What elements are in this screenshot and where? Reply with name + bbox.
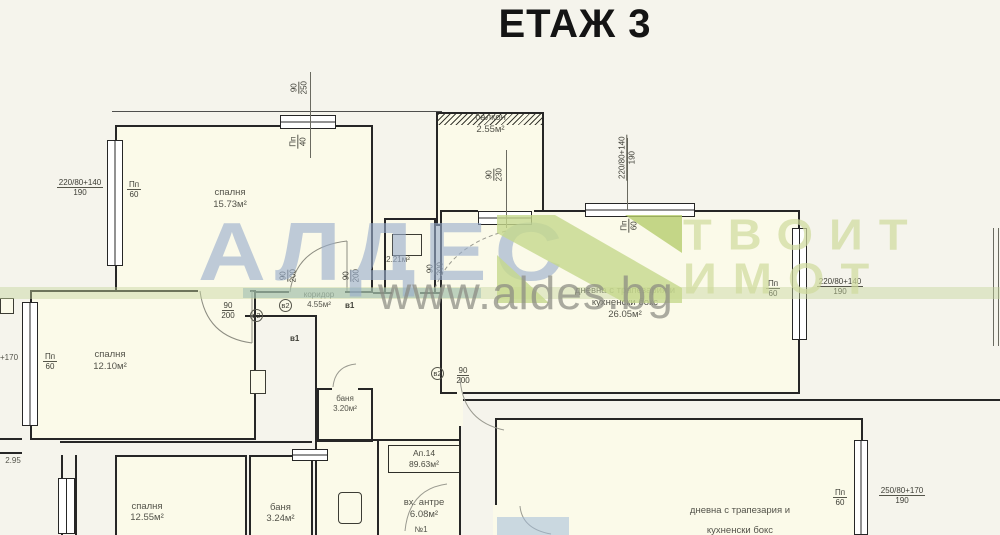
dim-pp60-b: Пп 60	[619, 214, 638, 238]
bedroom2-area: 12.10м²	[70, 362, 150, 372]
corridor-area: 4.55м²	[296, 301, 342, 310]
bath2-area: 3.24м²	[248, 514, 313, 524]
living2-name-2: кухненски бокс	[660, 526, 820, 535]
living-name-2: кухненски бокс	[545, 298, 705, 308]
wall-living2-slab	[460, 399, 1000, 401]
dim-pp60-a: Пп 60	[124, 180, 144, 199]
outer-wall-line	[112, 111, 442, 112]
living-area: 26.05м²	[545, 310, 705, 320]
bedroom1-area: 15.73м²	[180, 200, 280, 210]
apartment-number: Ап.14	[413, 448, 435, 458]
apartment-label-box: Ап.14 89.63м²	[388, 445, 460, 473]
balcony-area: 2.55м²	[448, 125, 533, 135]
dim-door-living: 90 200	[451, 366, 475, 385]
window-bath2-top	[292, 449, 328, 461]
wall-stub-b	[0, 452, 22, 454]
sink-fixture	[338, 492, 362, 524]
door-badge-b2-a: в2	[250, 309, 263, 322]
bath1-area: 3.20м²	[320, 405, 370, 414]
balcony-name: балкон	[448, 113, 533, 123]
room-living2	[495, 418, 863, 535]
dim-door-wc: 90 200	[425, 257, 444, 281]
length-295: 2.95	[0, 457, 26, 466]
wall-vert-entry	[377, 440, 379, 535]
door-badge-b2-b: в2	[279, 299, 292, 312]
bath2-name: баня	[248, 503, 313, 513]
dim-pp60-c: Пп 60	[763, 279, 783, 298]
dim-living-right-window: 220/80+140 190	[810, 277, 870, 296]
shaft-box	[250, 370, 266, 394]
bedroom1-name: спалня	[180, 188, 280, 198]
bedroom3-name: спалня	[112, 502, 182, 512]
bedroom2-name: спалня	[70, 350, 150, 360]
window-living-right	[792, 228, 807, 340]
bedroom3-area: 12.55м²	[112, 513, 182, 523]
dim-line-balcony-door	[506, 150, 507, 228]
edge-box	[0, 298, 14, 314]
window-living-top	[585, 203, 695, 217]
wall-bottom-double	[60, 441, 312, 443]
dim-balcony-door: 90 230	[484, 160, 503, 190]
bath1-name: баня	[320, 395, 370, 404]
window-bottom-left	[58, 478, 75, 534]
wc-fixture	[392, 234, 422, 256]
dim-door-corr-b: 90 200	[341, 264, 360, 288]
wall-vert-mid	[315, 316, 317, 535]
door-gap-bath1	[332, 386, 358, 391]
door-tag-v1-b: в1	[290, 334, 299, 343]
living-name-1: дневна с трапезария и	[545, 286, 705, 296]
wc-area: 2.21м²	[378, 256, 418, 265]
dim-pp40: Пп 40	[288, 132, 307, 152]
entry-name: вх. антре	[394, 498, 454, 508]
page-title: ЕТАЖ 3	[440, 2, 710, 47]
entry-area: 6.08м²	[394, 510, 454, 520]
corridor-name: коридор	[296, 291, 342, 300]
wall-left-inner	[75, 455, 77, 535]
edge-window-line2	[998, 228, 999, 346]
living2-name-1: дневна с трапезария и	[650, 506, 830, 516]
dim-window-living2: 250/80+170 190	[872, 486, 932, 505]
door-gap-living2	[493, 505, 498, 535]
dim-plus170: +170	[0, 354, 22, 363]
dim-line-top-window	[310, 72, 311, 158]
edge-window-line	[993, 228, 994, 346]
entry-note: №1	[406, 526, 436, 535]
door-tag-v1-a: в1	[345, 301, 354, 310]
dim-window1: 220/80+140 190	[50, 178, 110, 197]
door-badge-b2-c: в2	[431, 367, 444, 380]
window-living2-right	[854, 440, 868, 535]
wall-hall-top	[315, 439, 461, 441]
apartment-area: 89.63м²	[409, 459, 439, 469]
window-bedroom1-top	[280, 115, 336, 129]
window-bedroom2-left	[22, 302, 38, 426]
door-balcony	[478, 211, 532, 225]
window-bedroom1-left	[107, 140, 123, 266]
dim-pp60-d: Пп 60	[40, 352, 60, 371]
dim-pp60-e: Пп 60	[830, 488, 850, 507]
door-gap-bedroom2	[198, 288, 250, 293]
dim-top-window: 90 250	[289, 73, 308, 103]
dim-living-top-window: 220/80+140 190	[617, 128, 636, 188]
dim-door-corr-a: 90 200	[278, 264, 297, 288]
door-gap-wc	[392, 291, 420, 296]
wall-stub-a	[0, 438, 22, 440]
dim-door-bedroom2: 90 200	[216, 301, 240, 320]
floorplan-screen: ЕТАЖ 3	[0, 0, 1000, 535]
